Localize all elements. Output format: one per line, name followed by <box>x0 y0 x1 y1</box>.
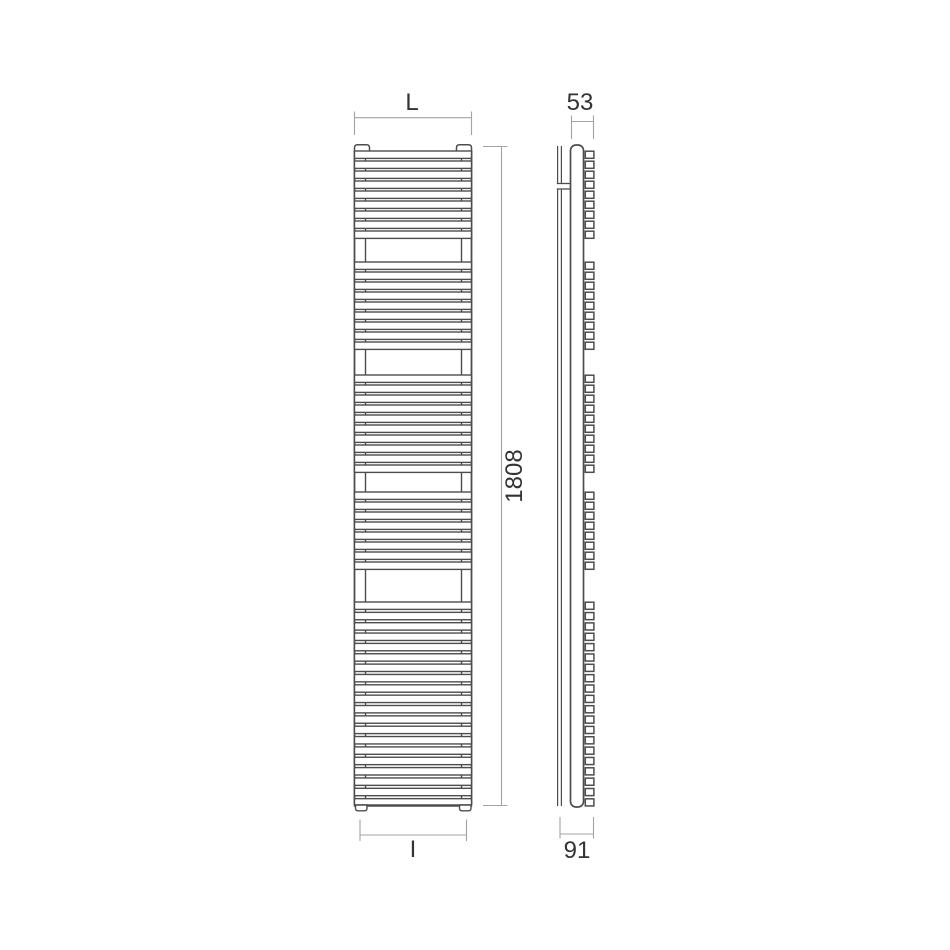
bar-end <box>585 171 594 178</box>
bar-end <box>585 706 594 713</box>
bar-end <box>585 522 594 529</box>
bar-end <box>585 415 594 422</box>
bar-end <box>585 675 594 682</box>
towel-bar <box>355 602 472 609</box>
bar-end <box>585 726 594 733</box>
bar-end <box>585 181 594 188</box>
towel-bar <box>355 435 472 442</box>
towel-bar <box>355 312 472 319</box>
towel-bar <box>355 522 472 529</box>
bar-end <box>585 405 594 412</box>
bar-end <box>585 768 594 775</box>
towel-bar <box>355 425 472 432</box>
radiator-drawing: L 53 1808 I 91 <box>0 0 950 950</box>
towel-bar <box>355 282 472 289</box>
bar-end <box>585 747 594 754</box>
bar-end <box>585 231 594 238</box>
towel-bar <box>355 737 472 744</box>
towel-bar <box>355 455 472 462</box>
towel-bar <box>355 542 472 549</box>
bar-end <box>585 191 594 198</box>
bar-end <box>585 312 594 319</box>
bar-end <box>585 445 594 452</box>
bar-end <box>585 664 594 671</box>
towel-bar <box>355 302 472 309</box>
bar-end <box>585 425 594 432</box>
bar-end <box>585 385 594 392</box>
towel-bar <box>355 502 472 509</box>
bar-end <box>585 654 594 661</box>
wall-bracket-body <box>557 184 572 189</box>
towel-bar <box>355 788 472 795</box>
towel-bar <box>355 191 472 198</box>
towel-bar <box>355 562 472 569</box>
bar-end <box>585 161 594 168</box>
towel-bar <box>355 654 472 661</box>
bar-end <box>585 492 594 499</box>
bar-end <box>585 542 594 549</box>
dim-label-depth-top: 53 <box>567 89 594 116</box>
towel-bar <box>355 395 472 402</box>
bar-end <box>585 695 594 702</box>
bar-end <box>585 375 594 382</box>
towel-bar <box>355 262 472 269</box>
towel-bar <box>355 612 472 619</box>
bar-end <box>585 211 594 218</box>
bar-end <box>585 685 594 692</box>
bar-end <box>585 282 594 289</box>
towel-bar <box>355 695 472 702</box>
bar-end <box>585 623 594 630</box>
towel-bar <box>355 716 472 723</box>
side-view-radiator <box>557 145 594 807</box>
dim-label-height: 1808 <box>501 449 528 502</box>
towel-bar <box>355 552 472 559</box>
towel-bar <box>355 465 472 472</box>
bar-end <box>585 737 594 744</box>
towel-bar <box>355 674 472 681</box>
front-view-radiator <box>355 145 472 811</box>
towel-bar <box>355 292 472 299</box>
towel-bar <box>355 272 472 279</box>
towel-bar <box>355 778 472 785</box>
bar-end <box>585 552 594 559</box>
bar-end <box>585 789 594 796</box>
bar-end <box>585 262 594 269</box>
bar-end <box>585 272 594 279</box>
bar-end <box>585 757 594 764</box>
towel-bar <box>355 492 472 499</box>
bar-end <box>585 221 594 228</box>
towel-bar <box>355 342 472 349</box>
towel-bar <box>355 405 472 412</box>
bar-end <box>585 532 594 539</box>
towel-bar <box>355 633 472 640</box>
bar-end <box>585 342 594 349</box>
towel-bar <box>355 532 472 539</box>
towel-bar <box>355 161 472 168</box>
dim-label-depth-bottom: 91 <box>564 837 591 864</box>
towel-bar <box>355 181 472 188</box>
towel-bar <box>355 726 472 733</box>
bar-end <box>585 799 594 806</box>
towel-bar <box>355 332 472 339</box>
towel-bar <box>355 706 472 713</box>
towel-bar <box>355 385 472 392</box>
bar-end <box>585 395 594 402</box>
bar-end <box>585 613 594 620</box>
towel-bar <box>355 664 472 671</box>
dim-label-connection-width: I <box>410 836 417 863</box>
bar-end <box>585 633 594 640</box>
bar-end <box>585 716 594 723</box>
towel-bar <box>355 221 472 228</box>
towel-bar <box>355 415 472 422</box>
dim-label-width: L <box>405 89 418 116</box>
towel-bar <box>355 375 472 382</box>
towel-bar <box>355 685 472 692</box>
bar-end <box>585 778 594 785</box>
towel-bar <box>355 322 472 329</box>
towel-bar <box>355 757 472 764</box>
bar-end <box>585 455 594 462</box>
towel-bar <box>355 231 472 238</box>
bar-end <box>585 151 594 158</box>
bar-end <box>585 332 594 339</box>
towel-bar <box>355 445 472 452</box>
side-collector-tube <box>571 145 584 807</box>
bar-end <box>585 602 594 609</box>
bar-end <box>585 302 594 309</box>
towel-bar <box>355 512 472 519</box>
left-foot <box>356 805 368 811</box>
towel-bar <box>355 623 472 630</box>
bar-end <box>585 201 594 208</box>
towel-bar <box>355 151 472 158</box>
towel-bar <box>355 768 472 775</box>
towel-bar <box>355 211 472 218</box>
bar-end <box>585 502 594 509</box>
bar-end <box>585 644 594 651</box>
bar-end <box>585 562 594 569</box>
bar-end <box>585 292 594 299</box>
bar-end <box>585 322 594 329</box>
drawing-canvas: L 53 1808 I 91 <box>0 0 950 950</box>
bar-end <box>585 435 594 442</box>
towel-bar <box>355 643 472 650</box>
bar-end <box>585 465 594 472</box>
towel-bar <box>355 171 472 178</box>
bar-end <box>585 512 594 519</box>
towel-bar <box>355 747 472 754</box>
towel-bar <box>355 201 472 208</box>
right-foot <box>460 805 472 811</box>
